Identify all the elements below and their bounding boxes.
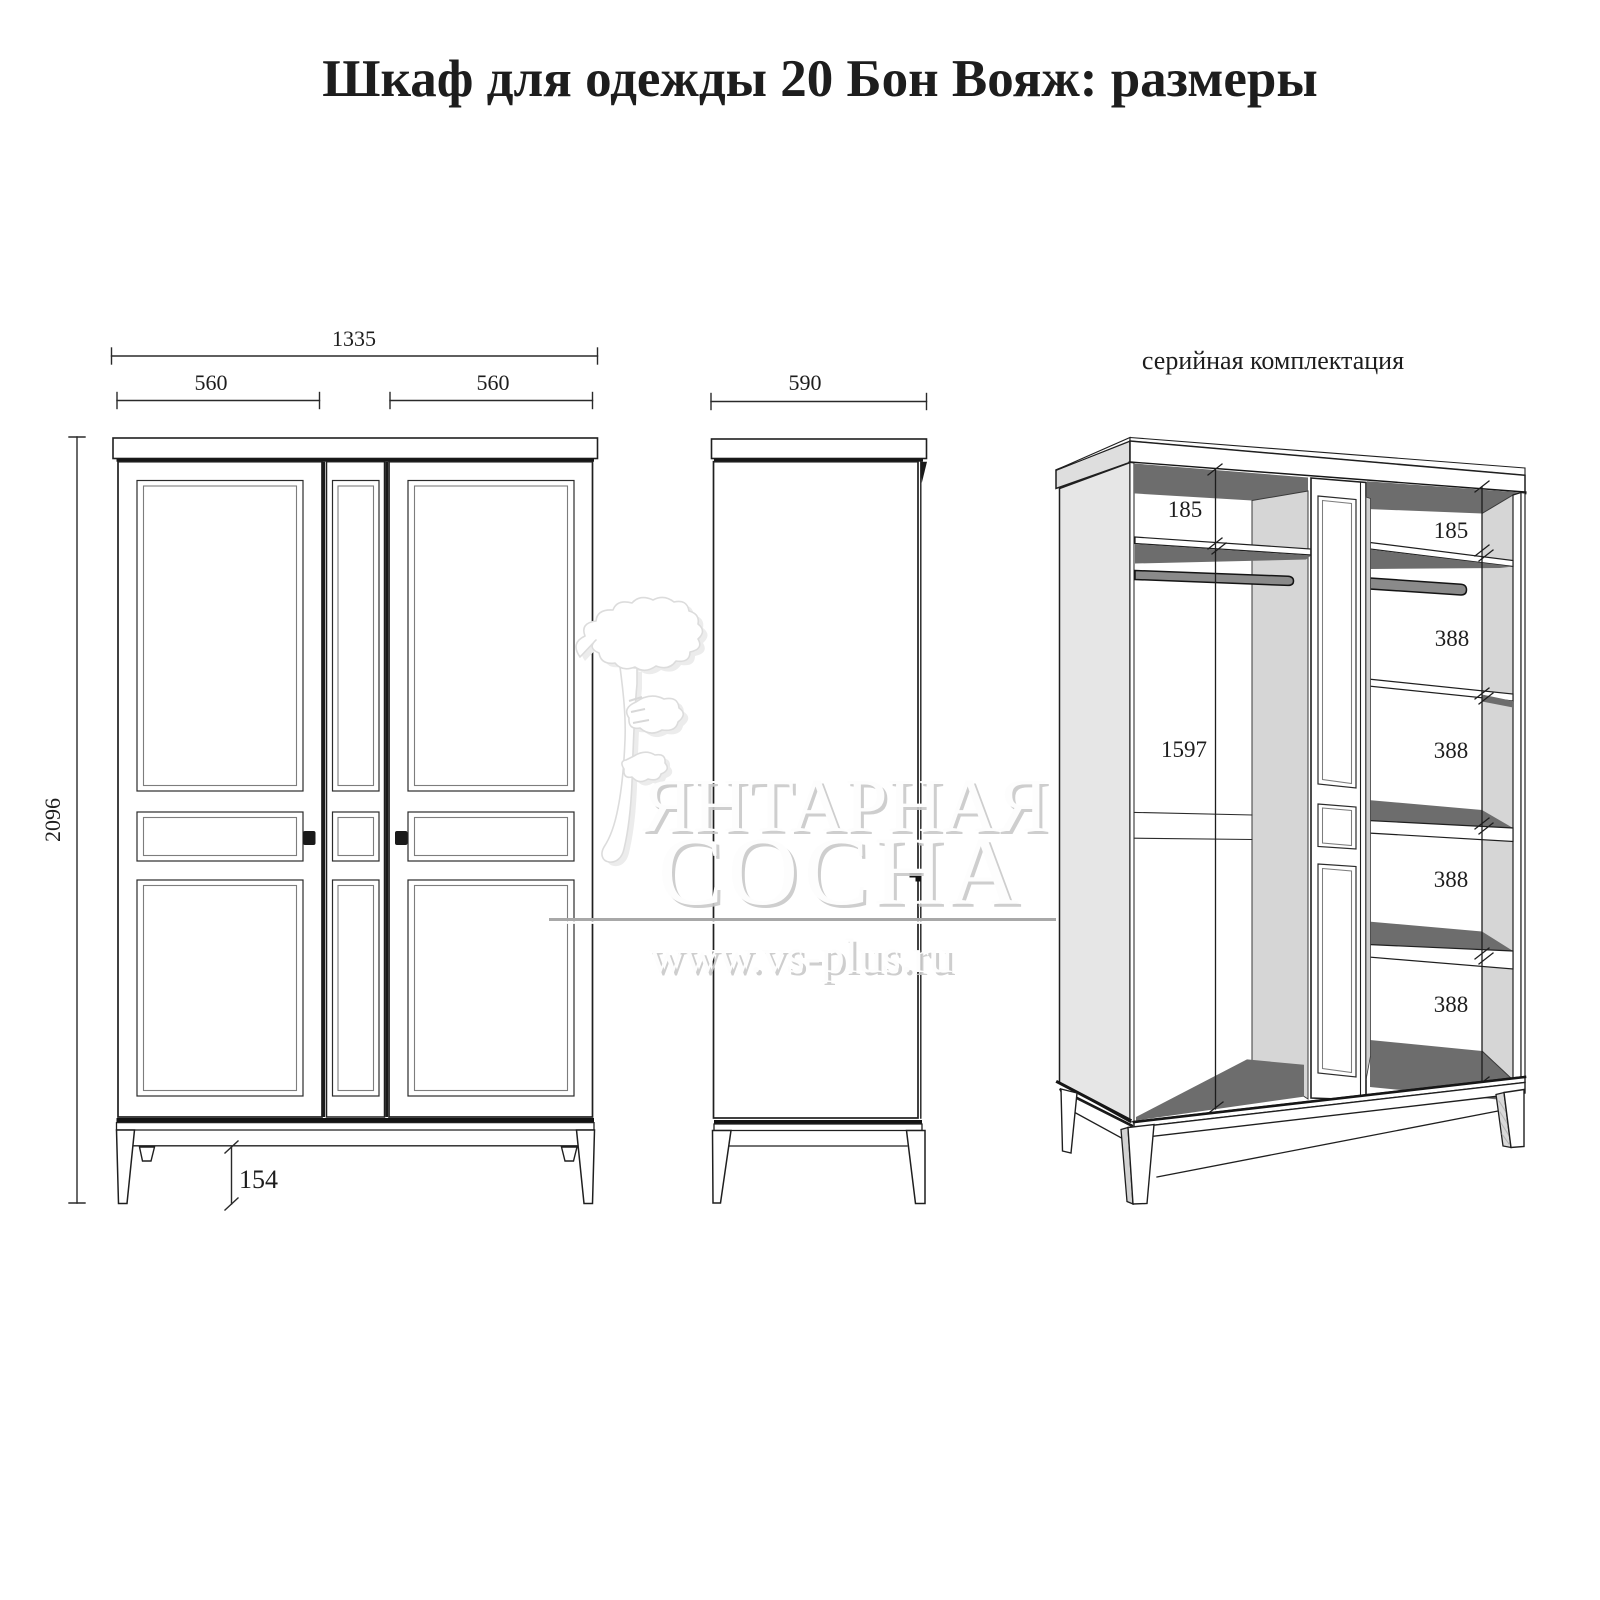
svg-text:560: 560 [195, 370, 228, 395]
svg-text:388: 388 [1434, 992, 1469, 1017]
svg-text:185: 185 [1168, 497, 1203, 522]
svg-text:388: 388 [1434, 867, 1469, 892]
svg-text:2096: 2096 [40, 798, 65, 842]
svg-text:www.vs-plus.ru: www.vs-plus.ru [649, 930, 953, 983]
svg-text:СОСНА: СОСНА [658, 818, 1024, 925]
svg-text:185: 185 [1434, 518, 1469, 543]
svg-text:1597: 1597 [1161, 737, 1207, 762]
svg-text:Шкаф для одежды 20 Бон Вояж: р: Шкаф для одежды 20 Бон Вояж: размеры [322, 50, 1317, 108]
svg-text:388: 388 [1434, 738, 1469, 763]
svg-text:154: 154 [239, 1165, 278, 1194]
svg-text:590: 590 [789, 370, 822, 395]
svg-text:388: 388 [1435, 626, 1470, 651]
svg-text:серийная комплектация: серийная комплектация [1142, 346, 1404, 375]
svg-text:560: 560 [477, 370, 510, 395]
svg-text:1335: 1335 [332, 326, 376, 351]
